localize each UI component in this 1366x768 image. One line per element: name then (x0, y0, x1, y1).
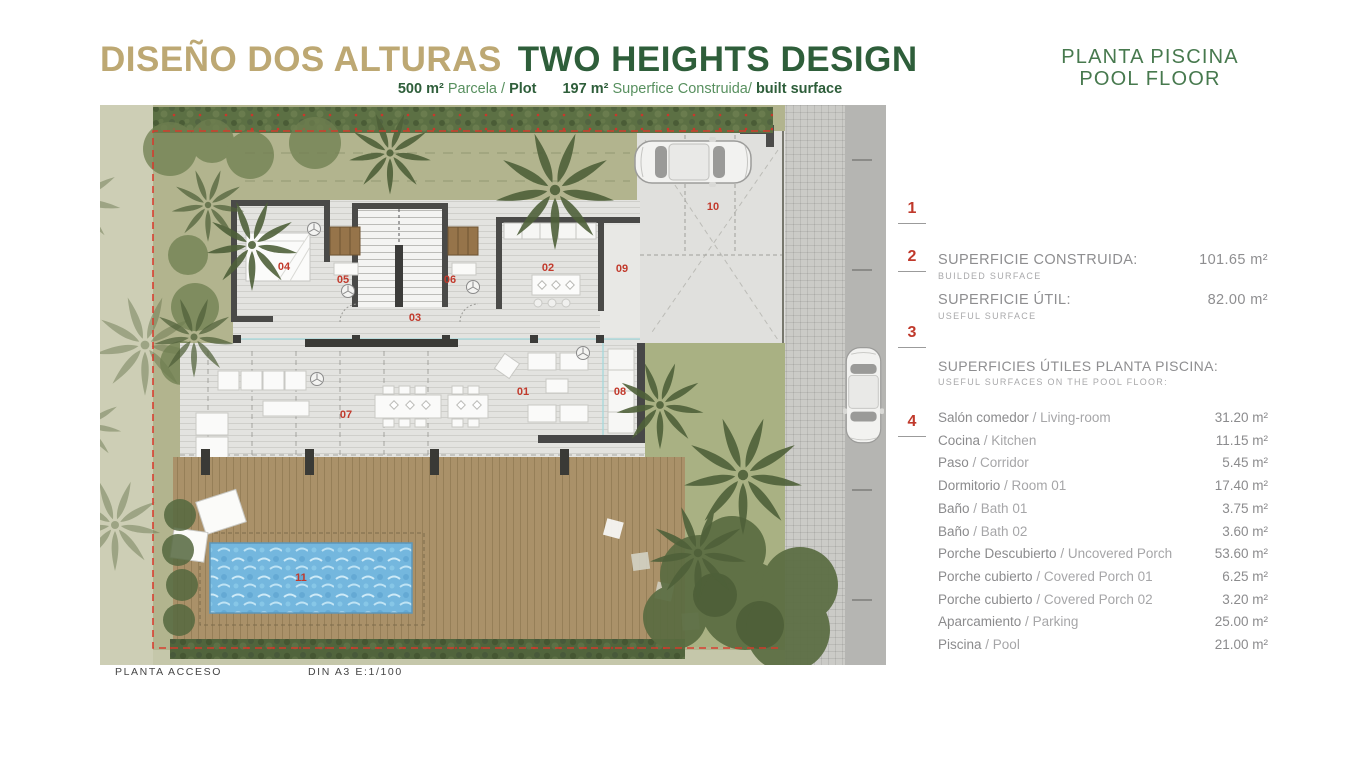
plot-subtitle: 500 m² Parcela / Plot197 m² Superfice Co… (340, 81, 900, 97)
level-marker-2: 2 (898, 248, 926, 272)
room-row: Porche Descubierto / Uncovered Porch53.6… (938, 543, 1268, 566)
hedge-bottom (170, 639, 685, 659)
room-label: Porche cubierto / Covered Porch 01 (938, 566, 1153, 589)
useful-surface-row: SUPERFICIE ÚTIL: 82.00 m² (938, 292, 1268, 308)
deck (162, 449, 685, 647)
floor-title-es: PLANTA PISCINA (1035, 46, 1265, 68)
svg-text:04: 04 (278, 261, 291, 273)
svg-text:07: 07 (340, 409, 352, 421)
room-row: Paso / Corridor5.45 m² (938, 452, 1268, 475)
room-value: 31.20 m² (1215, 407, 1268, 430)
room-value: 3.75 m² (1222, 498, 1268, 521)
section-subtitle: USEFUL SURFACES ON THE POOL FLOOR: (938, 377, 1268, 387)
room-value: 6.25 m² (1222, 566, 1268, 589)
level-marker-1: 1 (898, 200, 926, 224)
svg-text:06: 06 (444, 274, 456, 286)
room-label: Porche Descubierto / Uncovered Porch (938, 543, 1172, 566)
room-row: Dormitorio / Room 0117.40 m² (938, 475, 1268, 498)
svg-text:10: 10 (707, 201, 719, 213)
room-value: 5.45 m² (1222, 452, 1268, 475)
plot-label-en: Plot (509, 81, 536, 97)
built-label-en: built surface (756, 81, 842, 97)
room-value: 25.00 m² (1215, 611, 1268, 634)
svg-text:09: 09 (616, 263, 628, 275)
room-value: 11.15 m² (1216, 430, 1268, 453)
room-row: Baño / Bath 013.75 m² (938, 498, 1268, 521)
section-title: SUPERFICIES ÚTILES PLANTA PISCINA: (938, 358, 1268, 374)
room-row: Salón comedor / Living-room31.20 m² (938, 407, 1268, 430)
room-row: Baño / Bath 023.60 m² (938, 521, 1268, 544)
svg-text:11: 11 (295, 572, 307, 584)
floor-plan-svg: 0102030405060708091011 (100, 105, 886, 665)
rooms-list: Salón comedor / Living-room31.20 m²Cocin… (938, 407, 1268, 657)
useful-surface-label: SUPERFICIE ÚTIL: (938, 292, 1071, 308)
room-value: 3.20 m² (1222, 589, 1268, 612)
level-marker-4: 4 (898, 413, 926, 437)
built-value: 197 m² (562, 81, 608, 97)
room-label: Dormitorio / Room 01 (938, 475, 1066, 498)
useful-surface-value: 82.00 m² (1208, 292, 1268, 308)
plan-caption: PLANTA ACCESO (115, 666, 222, 678)
room-value: 53.60 m² (1215, 543, 1268, 566)
surface-panel: SUPERFICIE CONSTRUIDA: 101.65 m² BUILDED… (938, 252, 1268, 657)
hedge-top (153, 107, 773, 133)
floor-title: PLANTA PISCINA POOL FLOOR (1035, 46, 1265, 90)
room-row: Porche cubierto / Covered Porch 016.25 m… (938, 566, 1268, 589)
useful-surface-sublabel: USEFUL SURFACE (938, 311, 1268, 321)
floor-title-en: POOL FLOOR (1035, 68, 1265, 90)
room-label: Aparcamiento / Parking (938, 611, 1078, 634)
fan-icon (308, 223, 321, 236)
plot-label: Parcela / (448, 81, 505, 97)
parked-car-icon (635, 137, 751, 187)
svg-text:01: 01 (517, 386, 529, 398)
room-label: Paso / Corridor (938, 452, 1029, 475)
built-label: Superfice Construida/ (612, 81, 751, 97)
street-car-icon (843, 348, 884, 443)
room-value: 17.40 m² (1215, 475, 1268, 498)
room-label: Cocina / Kitchen (938, 430, 1036, 453)
svg-text:02: 02 (542, 262, 554, 274)
plot-value: 500 m² (398, 81, 444, 97)
room-row: Cocina / Kitchen11.15 m² (938, 430, 1268, 453)
parking-area (635, 125, 785, 345)
room-value: 21.00 m² (1215, 634, 1268, 657)
room-label: Piscina / Pool (938, 634, 1020, 657)
pool (210, 543, 412, 613)
room-value: 3.60 m² (1222, 521, 1268, 544)
page-title: DISEÑO DOS ALTURASTWO HEIGHTS DESIGN (100, 42, 918, 77)
room-label: Porche cubierto / Covered Porch 02 (938, 589, 1153, 612)
room-row: Aparcamiento / Parking25.00 m² (938, 611, 1268, 634)
title-english: TWO HEIGHTS DESIGN (518, 40, 918, 79)
built-surface-sublabel: BUILDED SURFACE (938, 271, 1268, 281)
room-label: Baño / Bath 01 (938, 498, 1027, 521)
built-surface-value: 101.65 m² (1199, 252, 1268, 268)
built-surface-row: SUPERFICIE CONSTRUIDA: 101.65 m² (938, 252, 1268, 268)
house-lower-wing (180, 339, 645, 470)
room-row: Porche cubierto / Covered Porch 023.20 m… (938, 589, 1268, 612)
svg-text:05: 05 (337, 274, 349, 286)
room-row: Piscina / Pool21.00 m² (938, 634, 1268, 657)
floor-plan: 0102030405060708091011 (100, 105, 886, 665)
plan-scale: DIN A3 E:1/100 (308, 666, 403, 678)
level-marker-3: 3 (898, 324, 926, 348)
svg-text:08: 08 (614, 386, 626, 398)
room-label: Salón comedor / Living-room (938, 407, 1111, 430)
built-surface-label: SUPERFICIE CONSTRUIDA: (938, 252, 1138, 268)
room-label: Baño / Bath 02 (938, 521, 1027, 544)
svg-text:03: 03 (409, 312, 421, 324)
page: DISEÑO DOS ALTURASTWO HEIGHTS DESIGN 500… (0, 0, 1366, 768)
title-spanish: DISEÑO DOS ALTURAS (100, 40, 502, 79)
